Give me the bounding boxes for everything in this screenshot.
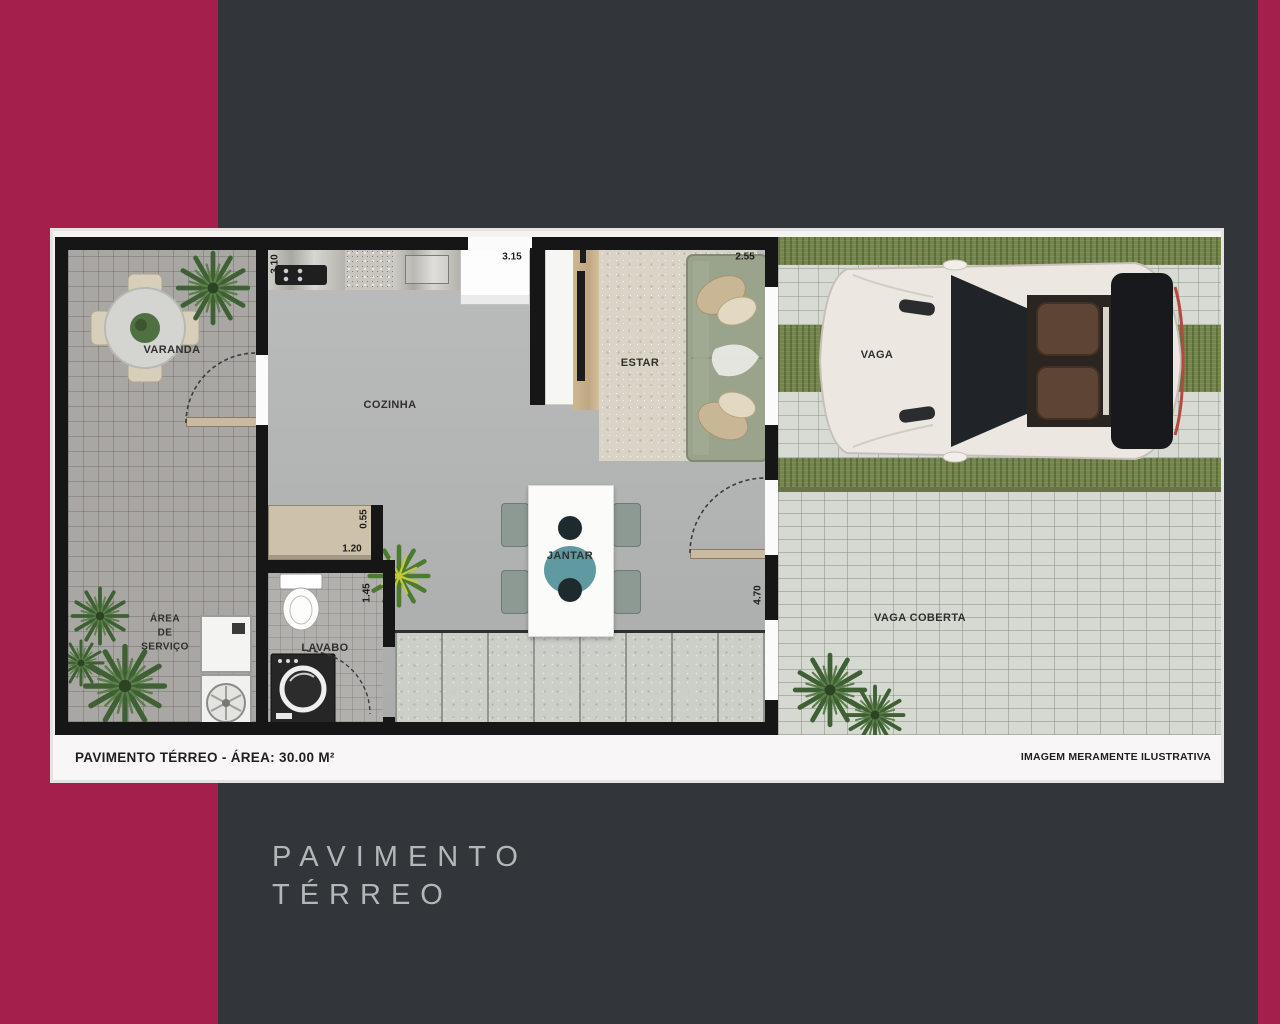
dining-chair <box>501 570 529 614</box>
dim-lavabo-width: 1.45 <box>362 583 373 602</box>
room-label-area-servico: DE <box>158 628 173 639</box>
varanda-door-arc <box>186 353 256 423</box>
dim-jantar-right: 4.70 <box>753 585 764 604</box>
plant-icon <box>175 250 251 326</box>
dining-chair <box>501 503 529 547</box>
dim-bancada-width: 1.20 <box>342 544 361 555</box>
room-label-cozinha: COZINHA <box>364 399 417 411</box>
wall-right-segment <box>765 555 778 620</box>
dim-cozinha-top: 3.15 <box>502 252 521 263</box>
wall-outer-bottom <box>55 722 778 735</box>
tv-speaker <box>580 248 586 263</box>
dining-chair <box>613 570 641 614</box>
tv-screen <box>577 271 585 381</box>
wall-lavabo-right <box>383 717 395 735</box>
room-label-area-servico: ÁREA <box>150 614 180 625</box>
wall-outer-left <box>55 237 68 735</box>
slide-title-line2: TÉRREO <box>272 876 528 914</box>
dim-estar-top: 2.55 <box>735 252 754 263</box>
wall-kitchen-estar-stub <box>530 248 545 405</box>
kitchen-granite-counter <box>345 249 393 290</box>
wall-outer-top <box>55 237 778 250</box>
room-label-lavabo: LAVABO <box>301 642 348 654</box>
lavabo-door-arc <box>307 651 370 714</box>
plan-footer-bar: PAVIMENTO TÉRREO - ÁREA: 30.00 M² IMAGEM… <box>53 735 1221 780</box>
plan-area-label: PAVIMENTO TÉRREO - ÁREA: 30.00 M² <box>75 735 335 780</box>
wall-right-segment <box>765 700 778 735</box>
car-top-view <box>813 253 1191 469</box>
patio-window <box>765 620 778 700</box>
wall-lavabo-right <box>383 573 395 647</box>
room-label-varanda: VARANDA <box>144 344 201 356</box>
sofa <box>685 253 769 463</box>
wall-right-segment <box>765 425 778 480</box>
tv-console <box>545 248 575 405</box>
dim-bancada-depth: 0.55 <box>359 509 370 528</box>
plan-disclaimer-label: IMAGEM MERAMENTE ILUSTRATIVA <box>1021 735 1211 780</box>
garage-door-opening <box>765 480 778 555</box>
table-plate <box>558 516 582 540</box>
varanda-door-opening <box>256 355 268 425</box>
room-label-vaga-coberta: VAGA COBERTA <box>874 612 966 624</box>
wall-right-segment <box>765 237 778 287</box>
accent-right-strip <box>1258 0 1280 1024</box>
plant-icon <box>82 643 168 729</box>
room-label-jantar: JANTAR <box>547 550 593 562</box>
cooktop <box>275 265 327 285</box>
laundry-tank-washer <box>200 615 252 731</box>
wall-bancada-side <box>371 505 383 573</box>
wall-varanda-divider <box>256 237 268 735</box>
slide-title-line1: PAVIMENTO <box>272 838 528 876</box>
table-plate <box>558 578 582 602</box>
dim-cozinha-left: 3.10 <box>270 254 281 273</box>
kitchen-window <box>468 237 532 250</box>
sink-basin <box>405 255 449 284</box>
estar-window <box>765 287 778 425</box>
floor-plan-image: VARANDA COZINHA ESTAR JANTAR LAVABO ÁREA… <box>50 228 1224 783</box>
room-label-area-servico: SERVIÇO <box>141 642 189 653</box>
plant-icon <box>70 586 130 646</box>
patio-tiles <box>395 630 765 725</box>
dining-chair <box>613 503 641 547</box>
room-label-estar: ESTAR <box>621 357 659 369</box>
room-label-vaga: VAGA <box>861 349 894 361</box>
toilet <box>278 573 324 631</box>
garage-door-arc <box>690 478 765 553</box>
slide-title: PAVIMENTO TÉRREO <box>272 838 528 914</box>
